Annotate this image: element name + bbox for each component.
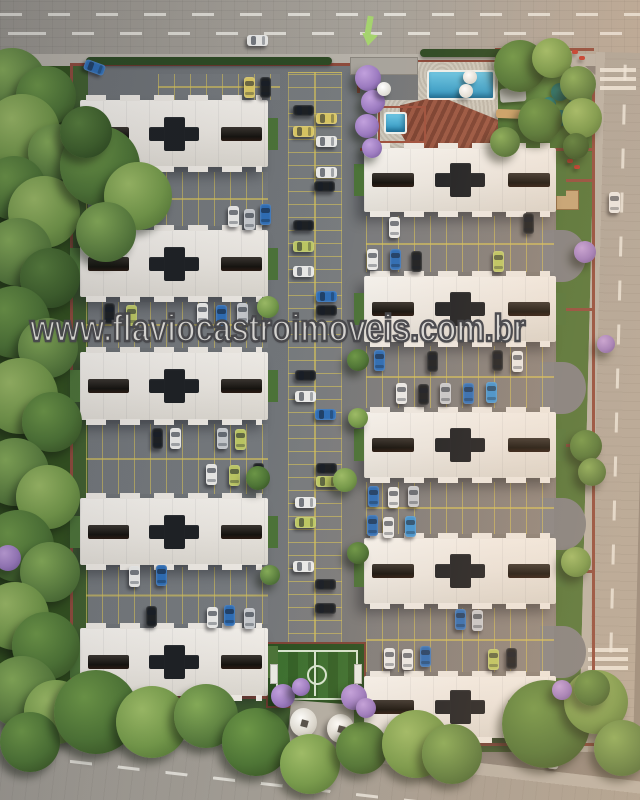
- lane-dash: [0, 797, 640, 800]
- parked-car: [315, 603, 336, 614]
- parked-car: [293, 220, 314, 231]
- entry-corridor: [372, 438, 414, 452]
- car-rear-window: [368, 264, 377, 267]
- tree: [563, 133, 589, 159]
- parked-car: [293, 241, 314, 252]
- car-rear-window: [489, 664, 498, 667]
- car-rear-window: [308, 127, 311, 136]
- car-rear-window: [245, 224, 254, 227]
- parked-car: [316, 463, 337, 474]
- car-rear-window: [157, 580, 166, 583]
- apartment-building: [364, 148, 556, 212]
- watermark-text: www.flaviocastroimoveis.com.br: [30, 308, 618, 352]
- parked-car: [295, 497, 316, 508]
- tree: [518, 98, 562, 142]
- water-tank-hatch: [300, 719, 309, 728]
- car-windshield: [87, 61, 95, 71]
- car-windshield: [319, 410, 324, 419]
- car-rear-window: [441, 398, 450, 401]
- car-rear-window: [130, 581, 139, 584]
- car-rear-window: [225, 620, 234, 623]
- car-rear-window: [236, 444, 245, 447]
- car-windshield: [412, 255, 421, 260]
- entry-corridor: [88, 525, 129, 539]
- car-windshield: [297, 127, 302, 136]
- roof-notches: [370, 477, 550, 483]
- tree: [333, 468, 357, 492]
- parked-car: [316, 113, 337, 124]
- car-rear-window: [406, 531, 415, 534]
- car-windshield: [419, 388, 428, 393]
- tree: [0, 712, 60, 772]
- parked-car: [374, 350, 385, 371]
- car-windshield: [218, 432, 227, 437]
- car-windshield: [507, 652, 516, 657]
- car-rear-window: [409, 501, 418, 504]
- roof-cross: [164, 645, 185, 679]
- parked-car: [408, 486, 419, 507]
- car-rear-window: [331, 464, 334, 473]
- car-rear-window: [493, 365, 502, 368]
- car-rear-window: [331, 292, 334, 301]
- car-rear-window: [610, 207, 619, 210]
- parked-car: [152, 428, 163, 449]
- parked-car: [224, 605, 235, 626]
- roof-cross: [164, 247, 185, 281]
- roof-notches: [370, 407, 550, 413]
- parked-car: [244, 77, 255, 98]
- roof-cross: [450, 428, 471, 462]
- roof-notches: [370, 271, 550, 277]
- entry-corridor: [508, 173, 550, 187]
- end-garden: [556, 164, 566, 196]
- parked-car: [389, 217, 400, 238]
- tree: [578, 458, 606, 486]
- car-rear-window: [331, 114, 334, 123]
- tree: [574, 670, 610, 706]
- parked-car: [388, 487, 399, 508]
- car-rear-window: [245, 92, 254, 95]
- jacaranda-tree: [574, 241, 596, 263]
- parking-row: [366, 346, 554, 408]
- car-windshield: [229, 210, 238, 215]
- end-garden: [70, 516, 80, 548]
- car-windshield: [318, 182, 323, 191]
- car-rear-window: [412, 266, 421, 269]
- car-rear-window: [308, 106, 311, 115]
- end-garden: [70, 370, 80, 402]
- car-windshield: [384, 521, 393, 526]
- car-rear-window: [308, 242, 311, 251]
- car-windshield: [297, 267, 302, 276]
- car-rear-window: [403, 664, 412, 667]
- car-rear-window: [171, 443, 180, 446]
- car-rear-window: [218, 443, 227, 446]
- car-windshield: [319, 604, 324, 613]
- car-windshield: [406, 520, 415, 525]
- tree: [336, 722, 388, 774]
- entry-corridor: [372, 173, 414, 187]
- car-windshield: [390, 221, 399, 226]
- car-rear-window: [308, 267, 311, 276]
- car-windshield: [299, 518, 304, 527]
- tree: [490, 127, 520, 157]
- car-windshield: [320, 464, 325, 473]
- end-garden: [268, 118, 278, 150]
- parked-car: [609, 192, 620, 213]
- tree: [560, 66, 596, 102]
- soccer-goal: [270, 664, 278, 684]
- entry-corridor: [221, 257, 262, 271]
- tree: [347, 349, 369, 371]
- car-rear-window: [230, 480, 239, 483]
- parked-car: [396, 383, 407, 404]
- car-windshield: [230, 469, 239, 474]
- parked-car: [316, 136, 337, 147]
- parked-car: [411, 251, 422, 272]
- tree: [562, 98, 602, 138]
- parked-car: [244, 209, 255, 230]
- tree: [347, 542, 369, 564]
- car-rear-window: [310, 518, 313, 527]
- parked-car: [156, 565, 167, 586]
- car-windshield: [319, 580, 324, 589]
- car-windshield: [368, 519, 377, 524]
- car-windshield: [320, 168, 325, 177]
- car-windshield: [236, 433, 245, 438]
- car-rear-window: [524, 228, 533, 231]
- car-windshield: [299, 392, 304, 401]
- roof-cross: [164, 515, 185, 549]
- car-rear-window: [391, 264, 400, 267]
- playground-bench: [579, 56, 585, 60]
- car-rear-window: [369, 501, 378, 504]
- parked-car: [418, 384, 429, 405]
- car-rear-window: [207, 479, 216, 482]
- parked-car: [368, 486, 379, 507]
- end-garden: [354, 164, 364, 196]
- car-windshield: [225, 609, 234, 614]
- car-windshield: [297, 106, 302, 115]
- car-windshield: [297, 562, 302, 571]
- jacaranda-tree: [355, 114, 379, 138]
- parked-car: [383, 517, 394, 538]
- parked-car: [228, 206, 239, 227]
- entry-corridor: [372, 564, 414, 578]
- tree: [570, 430, 602, 462]
- parked-car: [260, 204, 271, 225]
- car-windshield: [368, 253, 377, 258]
- car-rear-window: [464, 398, 473, 401]
- car-windshield: [513, 355, 522, 360]
- car-windshield: [245, 612, 254, 617]
- tree: [76, 202, 136, 262]
- car-windshield: [208, 611, 217, 616]
- car-rear-window: [261, 219, 270, 222]
- lane-dash: [607, 65, 627, 741]
- car-windshield: [245, 81, 254, 86]
- entry-corridor: [88, 655, 129, 669]
- parked-car: [493, 251, 504, 272]
- car-windshield: [464, 387, 473, 392]
- car-rear-window: [308, 562, 311, 571]
- car-rear-window: [428, 366, 437, 369]
- car-windshield: [397, 387, 406, 392]
- parked-car: [316, 167, 337, 178]
- car-rear-window: [310, 392, 313, 401]
- parked-car: [512, 351, 523, 372]
- roof-cross: [450, 163, 471, 197]
- car-windshield: [493, 354, 502, 359]
- end-garden: [556, 429, 566, 461]
- car-rear-window: [331, 168, 334, 177]
- car-rear-window: [385, 663, 394, 666]
- tree: [561, 547, 591, 577]
- roof-cross: [450, 690, 471, 724]
- car-windshield: [299, 371, 304, 380]
- parked-car: [463, 383, 474, 404]
- entry-corridor: [221, 379, 262, 393]
- car-windshield: [251, 36, 256, 45]
- lane-dash: [0, 13, 640, 16]
- car-windshield: [441, 387, 450, 392]
- entry-corridor: [508, 438, 550, 452]
- end-garden: [268, 516, 278, 548]
- parked-car: [402, 649, 413, 670]
- parked-car: [315, 579, 336, 590]
- parked-car: [293, 105, 314, 116]
- car-windshield: [375, 354, 384, 359]
- roof-notches: [86, 419, 262, 425]
- car-windshield: [428, 355, 437, 360]
- tree: [422, 724, 482, 784]
- parked-car: [206, 464, 217, 485]
- roof-notches: [370, 671, 550, 677]
- crosswalk-stripes: [600, 64, 636, 90]
- parked-car: [295, 391, 316, 402]
- parked-car: [455, 609, 466, 630]
- car-windshield: [409, 490, 418, 495]
- car-rear-window: [384, 532, 393, 535]
- car-rear-window: [308, 221, 311, 230]
- parked-car: [293, 561, 314, 572]
- car-windshield: [297, 242, 302, 251]
- car-windshield: [487, 386, 496, 391]
- car-rear-window: [421, 661, 430, 664]
- car-windshield: [369, 490, 378, 495]
- car-windshield: [320, 137, 325, 146]
- tree: [260, 565, 280, 585]
- parked-car: [235, 429, 246, 450]
- parked-car: [229, 465, 240, 486]
- soccer-goal: [354, 664, 362, 684]
- jacaranda-tree: [356, 698, 376, 718]
- car-windshield: [147, 610, 156, 615]
- parked-car: [247, 35, 268, 46]
- car-windshield: [524, 217, 533, 222]
- parked-car: [316, 291, 337, 302]
- end-garden: [354, 429, 364, 461]
- car-rear-window: [456, 624, 465, 627]
- aerial-site-plan-render: www.flaviocastroimoveis.com.br: [0, 0, 640, 800]
- entry-corridor: [221, 127, 262, 141]
- parked-car: [523, 213, 534, 234]
- car-rear-window: [389, 502, 398, 505]
- car-windshield: [489, 653, 498, 658]
- parked-car: [146, 606, 157, 627]
- car-windshield: [494, 255, 503, 260]
- car-windshield: [403, 653, 412, 658]
- car-rear-window: [331, 137, 334, 146]
- car-rear-window: [310, 498, 313, 507]
- end-garden: [268, 248, 278, 280]
- car-windshield: [297, 221, 302, 230]
- roof-cross: [164, 369, 185, 403]
- car-rear-window: [261, 92, 270, 95]
- car-windshield: [320, 114, 325, 123]
- soccer-center-circle: [307, 665, 327, 685]
- car-rear-window: [419, 399, 428, 402]
- parked-car: [207, 607, 218, 628]
- parked-car: [314, 181, 335, 192]
- car-rear-window: [245, 623, 254, 626]
- watermark-url: www.flaviocastroimoveis.com.br: [30, 308, 526, 350]
- water-tank: [290, 708, 317, 737]
- car-rear-window: [513, 366, 522, 369]
- car-rear-window: [310, 371, 313, 380]
- car-rear-window: [368, 530, 377, 533]
- parked-car: [367, 515, 378, 536]
- car-rear-window: [262, 36, 265, 45]
- car-rear-window: [494, 266, 503, 269]
- red-object: [567, 159, 573, 163]
- pool-umbrella: [459, 84, 473, 98]
- apartment-building: [364, 412, 556, 478]
- parked-car: [295, 517, 316, 528]
- parked-car: [129, 566, 140, 587]
- parked-car: [384, 648, 395, 669]
- car-windshield: [245, 213, 254, 218]
- roof-notches: [86, 95, 262, 101]
- car-windshield: [421, 650, 430, 655]
- entry-corridor: [88, 379, 129, 393]
- parked-car: [486, 382, 497, 403]
- jacaranda-tree: [362, 138, 382, 158]
- apartment-building: [80, 498, 268, 565]
- parked-car: [472, 610, 483, 631]
- car-windshield: [207, 468, 216, 473]
- parked-car: [217, 428, 228, 449]
- tree: [60, 106, 112, 158]
- parked-car: [293, 266, 314, 277]
- parked-car: [367, 249, 378, 270]
- car-rear-window: [375, 365, 384, 368]
- car-windshield: [130, 570, 139, 575]
- car-windshield: [610, 196, 619, 201]
- roof-notches: [86, 493, 262, 499]
- parked-car: [244, 608, 255, 629]
- car-windshield: [389, 491, 398, 496]
- roof-cross: [450, 554, 471, 588]
- end-garden: [268, 370, 278, 402]
- parked-car: [420, 646, 431, 667]
- car-windshield: [261, 81, 270, 86]
- car-windshield: [473, 614, 482, 619]
- car-rear-window: [487, 397, 496, 400]
- car-rear-window: [390, 232, 399, 235]
- tree: [348, 408, 368, 428]
- parking-row: [86, 567, 268, 624]
- car-windshield: [171, 432, 180, 437]
- parked-car: [293, 126, 314, 137]
- parked-car: [506, 648, 517, 669]
- apartment-building: [364, 538, 556, 604]
- car-rear-window: [229, 221, 238, 224]
- parked-car: [170, 428, 181, 449]
- car-rear-window: [507, 663, 516, 666]
- pool-umbrella: [377, 82, 391, 96]
- roof-notches: [86, 564, 262, 570]
- car-rear-window: [397, 398, 406, 401]
- parked-car: [405, 516, 416, 537]
- car-rear-window: [97, 65, 103, 74]
- parked-car: [440, 383, 451, 404]
- car-rear-window: [153, 443, 162, 446]
- roof-cross: [164, 117, 185, 151]
- roof-notches: [86, 296, 262, 302]
- car-rear-window: [473, 625, 482, 628]
- lane-dash: [0, 32, 640, 35]
- entry-corridor: [221, 525, 262, 539]
- car-windshield: [456, 613, 465, 618]
- car-windshield: [299, 498, 304, 507]
- parked-car: [315, 409, 336, 420]
- parked-car: [492, 350, 503, 371]
- apartment-building: [80, 352, 268, 420]
- entry-arrow-icon: [360, 33, 378, 48]
- pergola-frame: [378, 106, 426, 143]
- car-rear-window: [330, 410, 333, 419]
- car-windshield: [153, 432, 162, 437]
- roof-notches: [370, 143, 550, 149]
- parked-car: [390, 249, 401, 270]
- car-windshield: [157, 569, 166, 574]
- red-object: [574, 165, 580, 169]
- entry-corridor: [221, 655, 262, 669]
- car-windshield: [320, 292, 325, 301]
- car-rear-window: [208, 622, 217, 625]
- jacaranda-tree: [552, 680, 572, 700]
- entry-corridor: [508, 564, 550, 578]
- car-rear-window: [329, 182, 332, 191]
- roof-notches: [86, 623, 262, 629]
- car-windshield: [391, 253, 400, 258]
- playground-bench: [572, 50, 578, 54]
- hedge-row: [86, 57, 332, 65]
- pool-umbrella: [463, 70, 477, 84]
- car-windshield: [385, 652, 394, 657]
- car-windshield: [320, 477, 325, 486]
- car-windshield: [261, 208, 270, 213]
- jacaranda-tree: [292, 678, 310, 696]
- parked-car: [427, 351, 438, 372]
- car-rear-window: [147, 621, 156, 624]
- car-rear-window: [330, 604, 333, 613]
- tree: [280, 734, 340, 794]
- roof-notches: [370, 533, 550, 539]
- parked-car: [295, 370, 316, 381]
- car-rear-window: [330, 580, 333, 589]
